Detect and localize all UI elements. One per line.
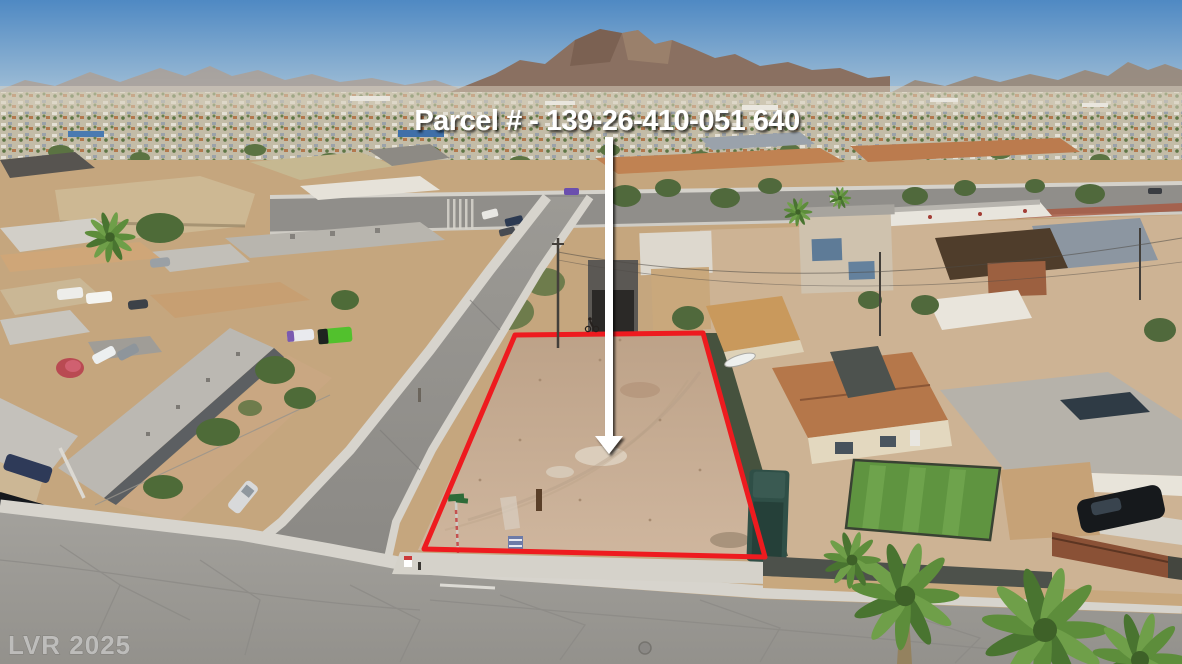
lawn bbox=[846, 460, 1000, 540]
aerial-photo-canvas: Parcel # - 139-26-410-051 640 LVR 2025 bbox=[0, 0, 1182, 664]
parcel-number-label: Parcel # - 139-26-410-051 640 bbox=[414, 105, 799, 137]
aerial-parcel-photo: Parcel # - 139-26-410-051 640 LVR 2025 bbox=[0, 0, 1182, 664]
green-jeep bbox=[317, 327, 352, 345]
manhole-cover bbox=[639, 642, 651, 654]
car bbox=[287, 329, 315, 342]
car bbox=[564, 188, 579, 195]
watermark: LVR 2025 bbox=[8, 630, 131, 660]
car bbox=[1148, 188, 1162, 194]
sign-post bbox=[418, 388, 421, 402]
wood-post bbox=[536, 489, 542, 511]
